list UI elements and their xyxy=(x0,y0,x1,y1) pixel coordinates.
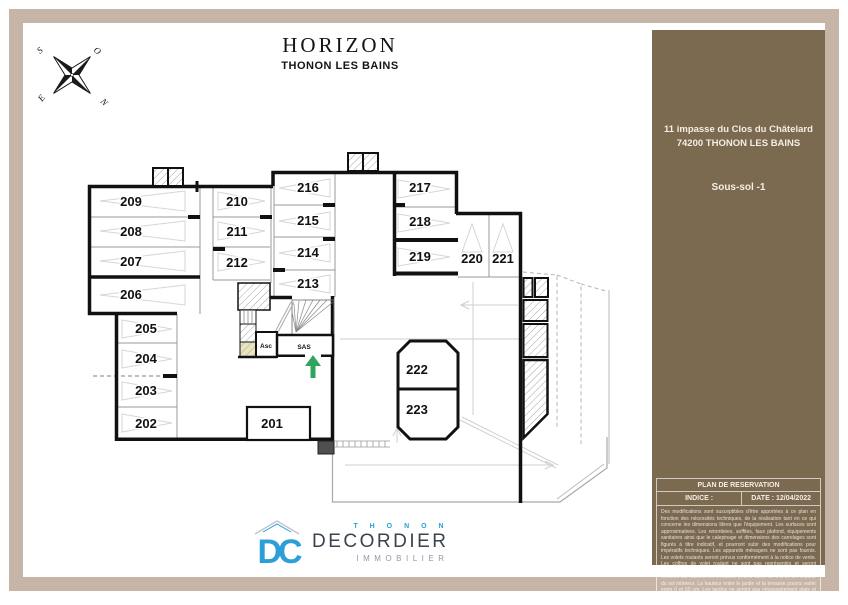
stall-214-label: 214 xyxy=(297,245,319,260)
stall-207-label: 207 xyxy=(120,254,142,269)
compass-rose-icon: S O E N xyxy=(35,45,111,109)
stall-222-223-box xyxy=(398,341,458,439)
agency-logo: DC T H O N O N DECORDIER IMMOBILIER xyxy=(252,511,492,575)
stall-219-label: 219 xyxy=(409,249,431,264)
info-sidebar: 11 impasse du Clos du Châtelard 74200 TH… xyxy=(652,30,825,565)
stall-202-label: 202 xyxy=(135,416,157,431)
stall-213-label: 213 xyxy=(297,276,319,291)
stall-218-label: 218 xyxy=(409,214,431,229)
level-label: Sous-sol -1 xyxy=(652,182,825,193)
stall-208-label: 208 xyxy=(120,224,142,239)
ramp-outline xyxy=(333,272,610,502)
stall-204-label: 204 xyxy=(135,351,157,366)
hatched-elements xyxy=(153,153,548,438)
logo-text-block: T H O N O N DECORDIER IMMOBILIER xyxy=(312,523,449,563)
stall-215-label: 215 xyxy=(297,213,319,228)
stall-222-label: 222 xyxy=(406,362,428,377)
stall-211-label: 211 xyxy=(227,224,248,239)
stall-201-label: 201 xyxy=(261,416,283,431)
stairs xyxy=(274,300,334,335)
stall-220-label: 220 xyxy=(461,251,483,266)
page-title: HORIZON xyxy=(240,33,440,58)
title-block: HORIZON THONON LES BAINS xyxy=(240,33,440,72)
compass-s: S xyxy=(35,45,45,56)
barrier-fence xyxy=(335,441,390,447)
stall-210-label: 210 xyxy=(226,194,248,209)
stall-206-label: 206 xyxy=(120,287,142,302)
reservation-box: PLAN DE RESERVATION INDICE : DATE : 12/0… xyxy=(656,478,821,605)
stall-205-label: 205 xyxy=(135,321,157,336)
stall-223-label: 223 xyxy=(406,402,428,417)
logo-monogram-icon: DC xyxy=(252,517,306,569)
compass-o: O xyxy=(92,45,104,57)
address-line2: 74200 THONON LES BAINS xyxy=(658,137,819,151)
indice-date-row: INDICE : DATE : 12/04/2022 xyxy=(657,492,820,506)
stall-203-label: 203 xyxy=(135,383,157,398)
address-line1: 11 impasse du Clos du Châtelard xyxy=(658,123,819,137)
stall-209-label: 209 xyxy=(120,194,142,209)
service-box xyxy=(318,441,334,454)
stall-221-label: 221 xyxy=(492,251,514,266)
logo-city: T H O N O N xyxy=(353,523,448,530)
date-cell: DATE : 12/04/2022 xyxy=(742,492,820,505)
sas-label: SAS xyxy=(297,344,311,351)
indice-cell: INDICE : xyxy=(657,492,742,505)
logo-brand-name: DECORDIER xyxy=(312,531,449,553)
reservation-plan-page: { "header": { "title": "HORIZON", "subti… xyxy=(0,0,848,600)
compass-e: E xyxy=(35,92,47,104)
elevator-label: Asc xyxy=(260,343,272,350)
page-subtitle: THONON LES BAINS xyxy=(240,60,440,72)
legal-disclaimer: Des modifications sont susceptibles d'êt… xyxy=(657,506,820,604)
stall-217-label: 217 xyxy=(409,180,431,195)
project-address: 11 impasse du Clos du Châtelard 74200 TH… xyxy=(658,123,819,152)
logo-brand-subtitle: IMMOBILIER xyxy=(356,554,448,563)
stall-216-label: 216 xyxy=(297,180,319,195)
svg-text:DC: DC xyxy=(257,533,302,569)
entrance-arrow-icon xyxy=(305,355,321,378)
reservation-title: PLAN DE RESERVATION xyxy=(657,479,820,492)
stall-212-label: 212 xyxy=(226,255,248,270)
compass-n: N xyxy=(98,96,111,109)
